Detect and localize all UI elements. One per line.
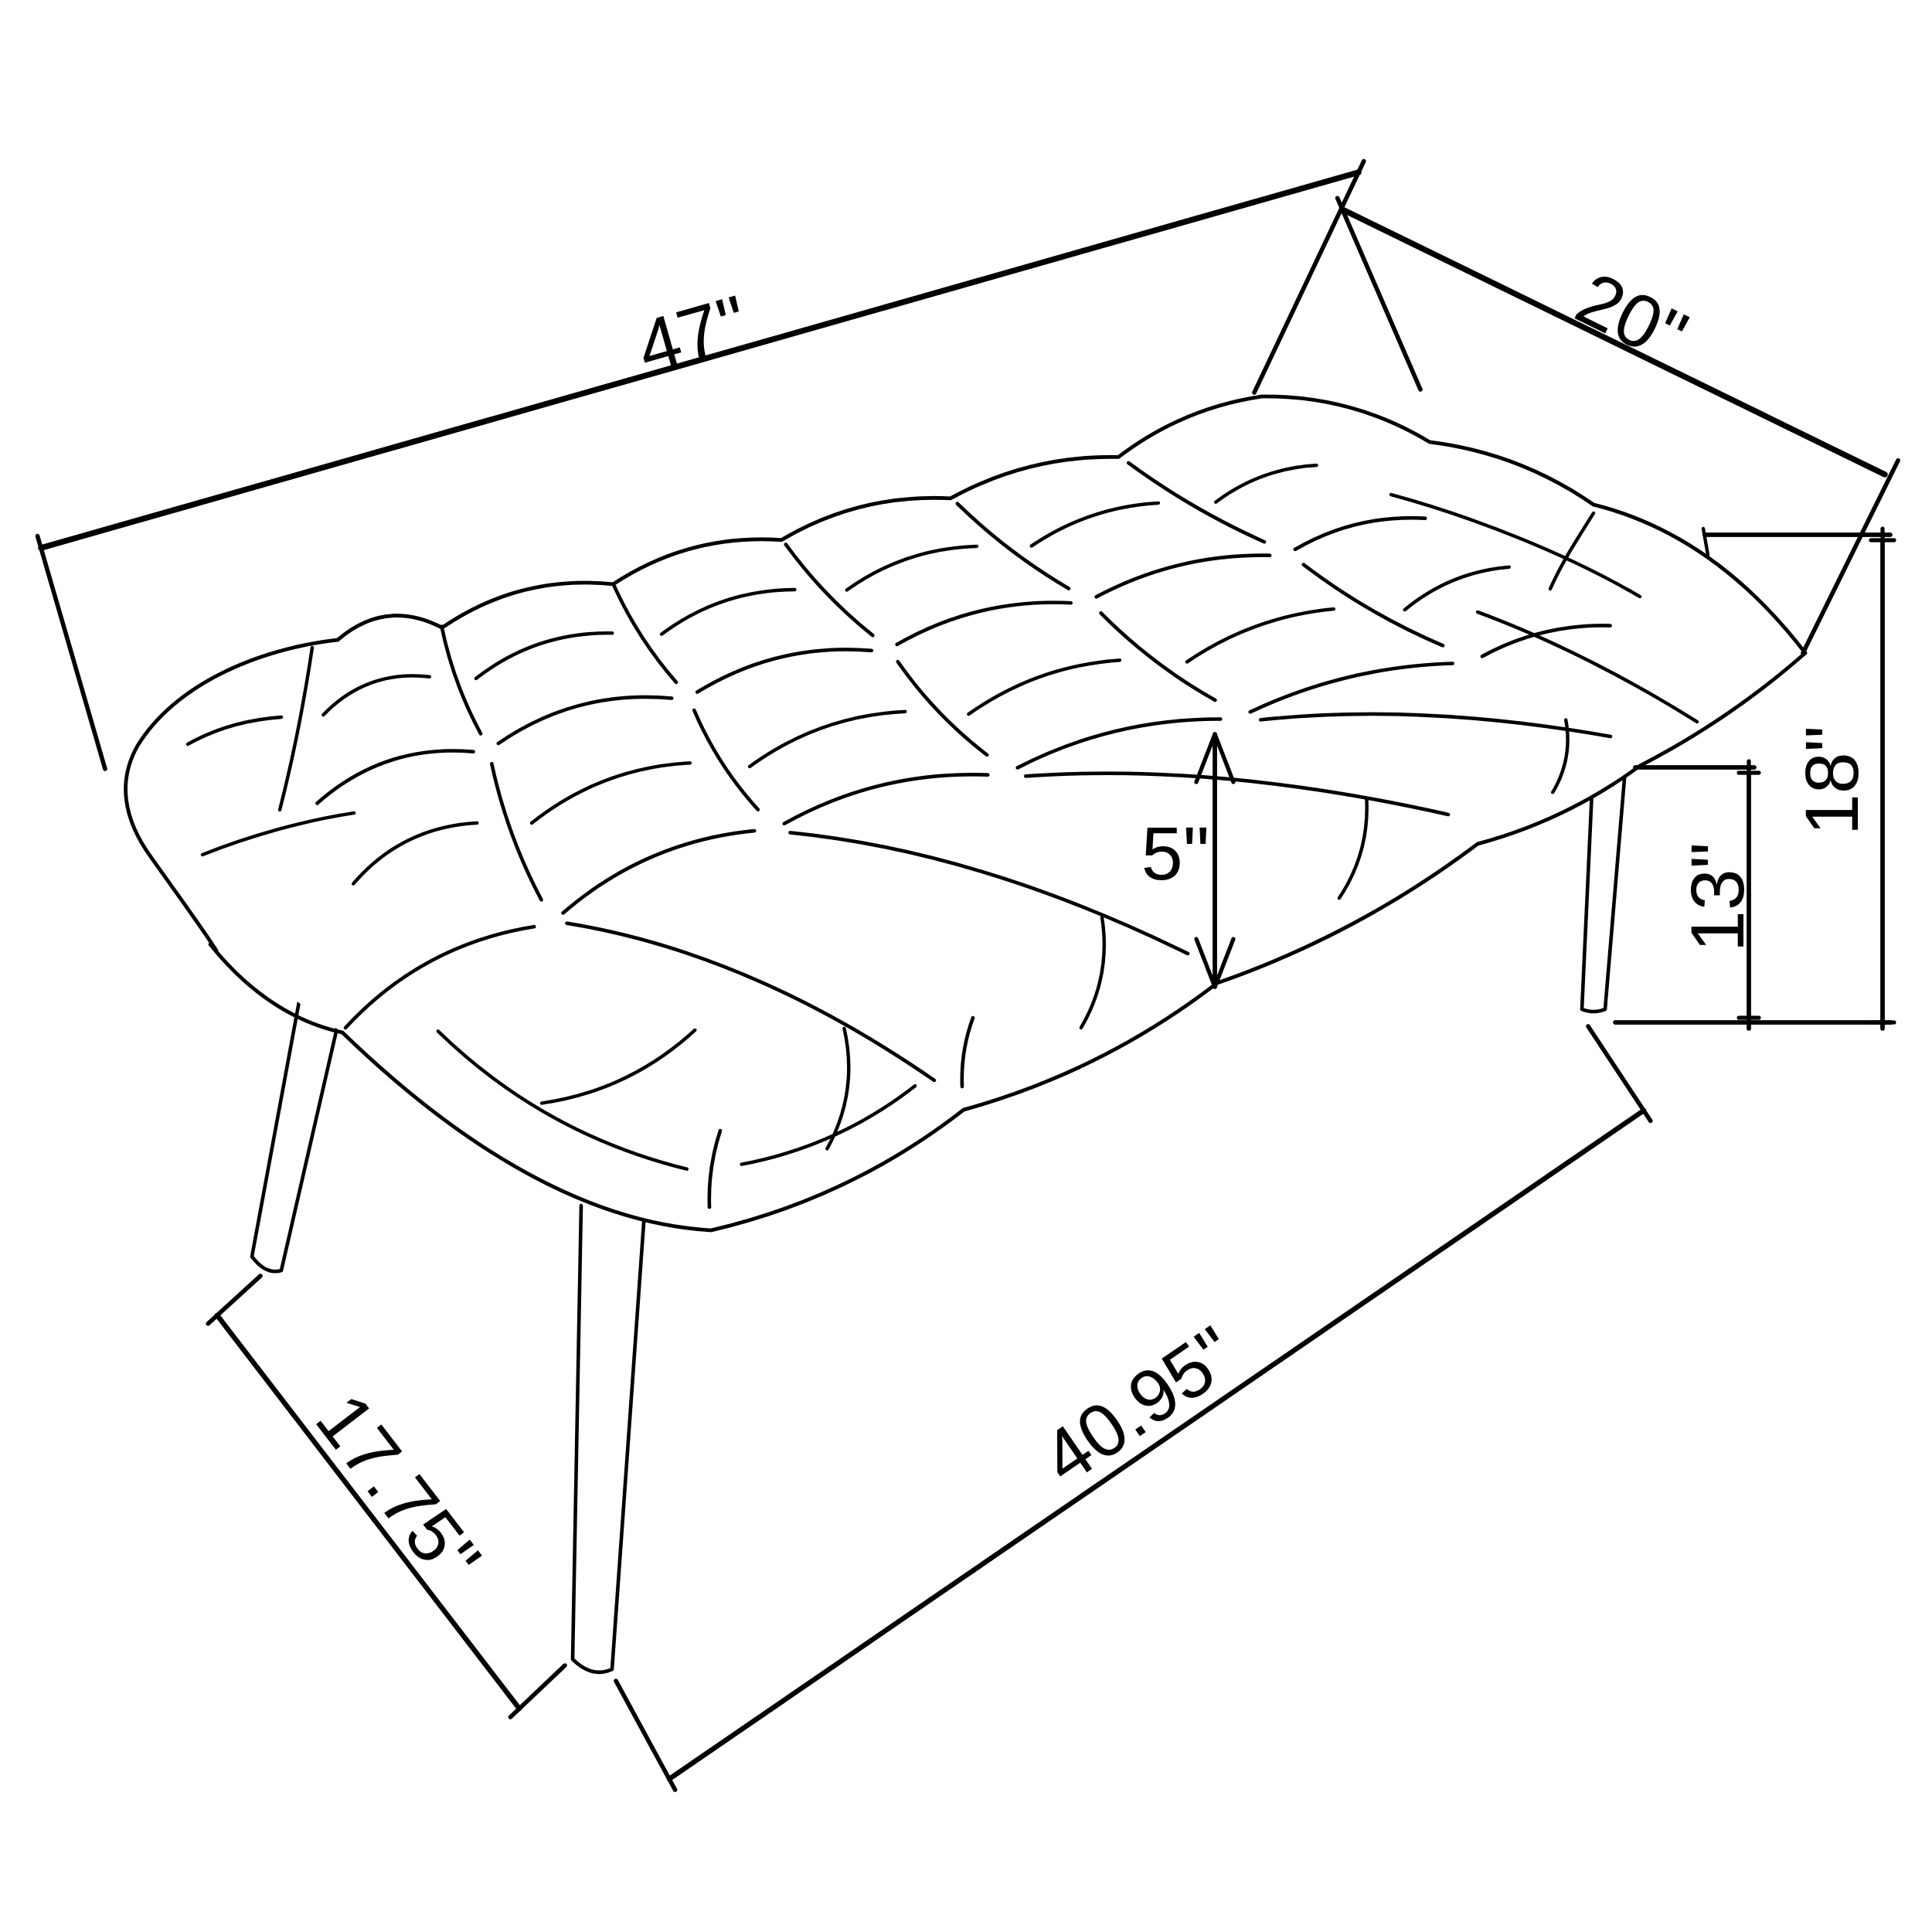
svg-text:13": 13"	[1675, 842, 1760, 952]
svg-text:18": 18"	[1790, 726, 1874, 835]
svg-text:5": 5"	[1141, 811, 1209, 896]
